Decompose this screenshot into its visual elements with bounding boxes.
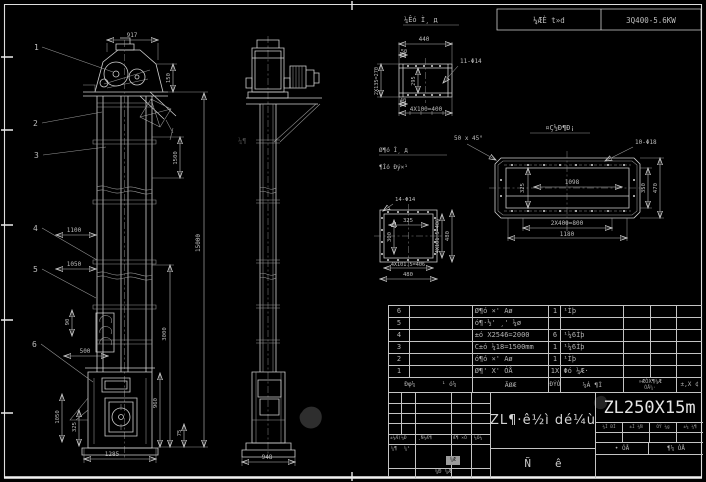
- dim-front-section: 1500: [173, 151, 179, 164]
- part-num: 6: [389, 306, 410, 317]
- chamfer-annotation: 50 x 45°: [454, 135, 496, 160]
- dim-box-inner: 1098: [565, 179, 580, 186]
- top-floating-label: ¼Êó Ì¸ д: [404, 15, 438, 24]
- dim-flange-top: 440: [419, 36, 430, 43]
- callout-3: 3: [34, 151, 39, 160]
- top-header-bar: ¼ÆÈ t»d 3Q400-5.6KW ¼Êó Ì¸ д: [403, 9, 701, 30]
- part-qty: 1: [549, 354, 561, 365]
- sig-label-1: ±¼Æ(¼Ð: [390, 436, 407, 441]
- dim-front-inlet: 500: [80, 348, 91, 355]
- part-num: 4: [389, 330, 410, 341]
- top-bar-right-label: 3Q400-5.6KW: [626, 16, 676, 25]
- header-code: ¹ ó¼: [442, 380, 456, 390]
- dim-flange-left: 2X135=270: [374, 67, 380, 95]
- callout-4: 4: [33, 224, 38, 233]
- drawing-type-right: ê: [555, 457, 562, 470]
- dim-square-right-inner: 4X101.5=406: [435, 219, 441, 253]
- table-row: 4 ±ó X2546=2000 6 ¹¼6Ìþ: [389, 330, 702, 342]
- callout-5: 5: [33, 265, 38, 274]
- approval-stamp: ¼Æ: [446, 456, 460, 465]
- title-block-right: ZL250X15m ¼Ì ÐÌ ±Ì ¼Ñ ÓÝ ¼g ±¼ ¼¶ • ÓÅ ¶…: [596, 393, 703, 478]
- callout-2: 2: [33, 119, 38, 128]
- table-row: 3 C±ó ¼18=1500mm 1 ¹¼6Ìþ: [389, 342, 702, 354]
- scale-right: ¶¼ ÓÅ: [649, 443, 703, 454]
- sig-label-2: ¸Ñ¼Æ¶: [418, 436, 432, 441]
- sig-label-6: ¼¹: [404, 446, 410, 452]
- dim-front-overall-width: 917: [127, 32, 138, 39]
- part-num: 3: [389, 342, 410, 353]
- detail-long-box: ¤Ç½Ð¶Ð¡ 325 1098 350 470 2X400=800 1180 …: [489, 124, 664, 241]
- dim-square-bottom-inner: 4X101.5=406: [391, 262, 425, 268]
- dim-front-total-height: 15000: [195, 234, 202, 252]
- long-box-title: ¤Ç½Ð¶Ð¡: [545, 124, 575, 132]
- note-square-holes: 14-Φ14: [395, 197, 416, 203]
- part-num: 1: [389, 366, 410, 377]
- part-qty: [549, 318, 561, 329]
- part-num: 5: [389, 318, 410, 329]
- chamfer-note: 50 x 45°: [454, 135, 483, 142]
- header-qty: ÐÝÒ: [549, 378, 561, 392]
- note-flange-holes: 11-Φ14: [460, 58, 482, 65]
- title-block: ±¼Æ(¼Ð ¸Ñ¼Æ¶ Æ¶ ×Ó ¼Ó¼ ¼¶ ¼¹ ¼Æ ¼Ð ¼Æ ZL…: [388, 392, 702, 477]
- header-weight-sub: ÓÅ¼·: [644, 385, 656, 391]
- scale-left: • ÓÅ: [596, 443, 649, 454]
- dim-front-lower: 3000: [162, 327, 168, 340]
- top-bar-left-label: ¼ÆÈ t»d: [533, 16, 565, 25]
- attr-4: ±¼ ¼¶: [677, 423, 703, 432]
- dim-front-v1050: 1050: [55, 410, 61, 423]
- callout-1: 1: [34, 43, 39, 52]
- part-num: 2: [389, 354, 410, 365]
- part-material: ¹Ìþ: [561, 306, 624, 317]
- part-desc: ó¶ó ×' Aø: [473, 354, 550, 365]
- dim-front-boot-height: 960: [153, 398, 159, 408]
- dim-flange-bottom: 4X100=400: [410, 106, 443, 113]
- square-label-2: ¶Ìó Ðý×¹: [379, 164, 408, 171]
- dim-front-base: 75: [177, 430, 183, 437]
- callout-leaders: 1 2 3 4 5 6: [32, 43, 113, 382]
- dim-box-bottom-inner: 2X400=800: [551, 220, 584, 227]
- parts-table-header: Ðφ¼ ¹ ó¼ ÃØÆ ÐÝÒ ¼Á ¶Ì »ÆÒX¶¼Æ ÓÅ¼· ±,X …: [389, 378, 702, 393]
- note-box-holes: 10-Φ18: [635, 139, 657, 146]
- part-material: Φó ¼Æ·: [561, 366, 624, 377]
- part-qty: 1: [549, 306, 561, 317]
- watermark-text: ¼¶: [238, 137, 246, 145]
- drawing-name: ZL¶·ê½ì dé¼ù: [491, 393, 595, 449]
- dim-front-head: 150: [166, 73, 172, 83]
- dim-flange-40: 40: [400, 98, 406, 104]
- parts-table: 6 Ø¶ó ×' Aø 1 ¹Ìþ 5 ó¶·½' ¸' ¼ø 4 ±ó X25…: [388, 305, 702, 392]
- table-row: 6 Ø¶ó ×' Aø 1 ¹Ìþ: [389, 306, 702, 318]
- part-material: ¹¼6Ìþ: [561, 330, 624, 341]
- dim-box-right-outer: 470: [653, 183, 659, 193]
- part-desc: ±ó X2546=2000: [473, 330, 550, 341]
- drawing-sheet: ¼ÆÈ t»d 3Q400-5.6KW ¼Êó Ì¸ д 917: [0, 0, 706, 482]
- part-desc: Ø¶' X' ÓÅ: [473, 366, 550, 377]
- dim-box-bottom-outer: 1180: [560, 231, 575, 238]
- dim-side-base-width: 948: [262, 454, 273, 461]
- dim-front-door: 90: [65, 319, 71, 326]
- part-qty: 1: [549, 342, 561, 353]
- dim-front-w1: 1100: [67, 227, 82, 234]
- title-block-revision-grid: ±¼Æ(¼Ð ¸Ñ¼Æ¶ Æ¶ ×Ó ¼Ó¼ ¼¶ ¼¹ ¼Æ ¼Ð ¼Æ: [389, 393, 491, 478]
- table-row: 5 ó¶·½' ¸' ¼ø: [389, 318, 702, 330]
- dim-front-v325: 325: [72, 422, 78, 432]
- dim-square-right-outer: 480: [445, 231, 451, 241]
- sig-label-3: Æ¶ ×Ó: [453, 436, 467, 441]
- header-remark: ±,X ¢: [677, 378, 702, 392]
- attr-2: ±Ì ¼Ñ: [623, 423, 650, 432]
- dim-square-inner-height: 300: [387, 232, 393, 242]
- part-material: ¹Ìþ: [561, 354, 624, 365]
- header-material: ¼Á ¶Ì: [561, 378, 624, 392]
- dim-flange-50: 50: [401, 49, 407, 55]
- dim-front-w2: 1050: [67, 261, 82, 268]
- dim-square-inner-width: 325: [403, 218, 413, 224]
- side-view-dimensions: 948 ¼¶: [238, 137, 295, 466]
- part-desc: ó¶·½' ¸' ¼ø: [473, 318, 550, 329]
- table-row: 2 ó¶ó ×' Aø 1 ¹Ìþ: [389, 354, 702, 366]
- attr-3: ÓÝ ¼g: [650, 423, 677, 432]
- detail-top-flange: 440 50 2X135=270 295 40 4X100=400 11-Φ14: [374, 36, 482, 116]
- dim-square-bottom-outer: 480: [403, 272, 413, 278]
- attr-1: ¼Ì ÐÌ: [596, 423, 623, 432]
- dim-box-right-inner: 350: [641, 183, 647, 193]
- square-label-1: Ø¶ó Ì¸ д: [379, 147, 408, 154]
- side-view-linework: [242, 36, 322, 458]
- sig-label-4: ¼Ó¼: [474, 436, 482, 441]
- part-code: [410, 306, 473, 317]
- dim-box-left: 325: [520, 183, 526, 193]
- part-material: ¹¼6Ìþ: [561, 342, 624, 353]
- header-name: ÃØÆ: [473, 378, 550, 392]
- part-desc: Ø¶ó ×' Aø: [473, 306, 550, 317]
- dim-flange-inner: 295: [411, 76, 417, 85]
- part-qty: 1X: [549, 366, 561, 377]
- callout-6: 6: [32, 340, 37, 349]
- model-number: ZL250X15m: [596, 393, 703, 423]
- dim-front-base-width: 1285: [105, 451, 120, 458]
- part-desc: C±ó ¼18=1500mm: [473, 342, 550, 353]
- part-material: [561, 318, 624, 329]
- stamp-label: ¼Ð ¼Æ: [435, 469, 452, 475]
- part-qty: 6: [549, 330, 561, 341]
- title-block-center: ZL¶·ê½ì dé¼ù Ñ ê: [491, 393, 596, 478]
- header-seq: Ðφ¼: [404, 380, 415, 390]
- detail-square-flange: Ø¶ó Ì¸ д ¶Ìó Ðý×¹ 14-Φ14 325 300 4X101.5…: [374, 147, 452, 279]
- sig-label-5: ¼¶: [391, 446, 397, 452]
- table-row: 1 Ø¶' X' ÓÅ 1X Φó ¼Æ·: [389, 366, 702, 378]
- drawing-type-left: Ñ: [524, 457, 531, 470]
